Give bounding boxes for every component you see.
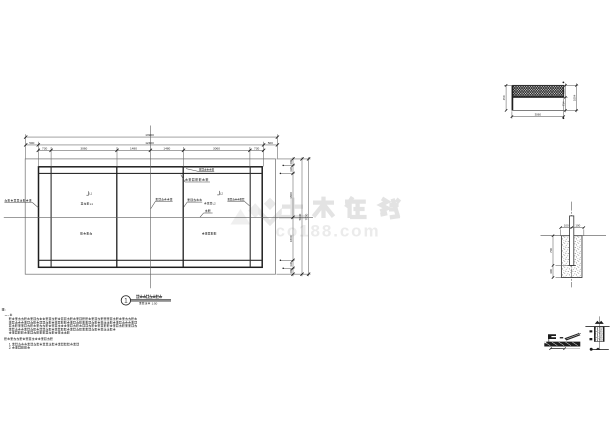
svg-text:700: 700	[549, 248, 553, 253]
svg-text:730: 730	[42, 146, 47, 150]
svg-text:1094: 1094	[572, 94, 576, 101]
svg-text:7000: 7000	[304, 213, 308, 220]
svg-text:500: 500	[268, 141, 273, 145]
svg-text:1800: 1800	[289, 235, 293, 242]
svg-text:L1: L1	[90, 202, 94, 206]
svg-text:1:50: 1:50	[152, 301, 158, 305]
svg-text:1480: 1480	[130, 146, 137, 150]
svg-text:3060: 3060	[535, 113, 542, 117]
svg-text:300: 300	[549, 269, 553, 274]
svg-text:450: 450	[502, 95, 506, 100]
svg-text:12400: 12400	[145, 141, 154, 145]
svg-text:3060: 3060	[213, 146, 220, 150]
svg-text:L2: L2	[213, 202, 216, 206]
svg-text:400: 400	[289, 159, 293, 164]
svg-text:400: 400	[289, 268, 293, 273]
svg-text:730: 730	[254, 146, 259, 150]
svg-text:100: 100	[564, 224, 569, 228]
svg-text:330: 330	[289, 167, 293, 172]
svg-text:500: 500	[29, 141, 34, 145]
svg-text:13900: 13900	[145, 133, 154, 137]
svg-text:380: 380	[561, 89, 565, 94]
svg-text:5030: 5030	[298, 213, 302, 220]
svg-text:100: 100	[575, 224, 580, 228]
svg-text:1480: 1480	[163, 146, 170, 150]
svg-text:714: 714	[561, 101, 565, 106]
svg-text:3060: 3060	[80, 146, 87, 150]
svg-text:1800: 1800	[289, 192, 293, 199]
svg-text:2.: 2.	[9, 346, 12, 350]
svg-text:330: 330	[289, 261, 293, 266]
